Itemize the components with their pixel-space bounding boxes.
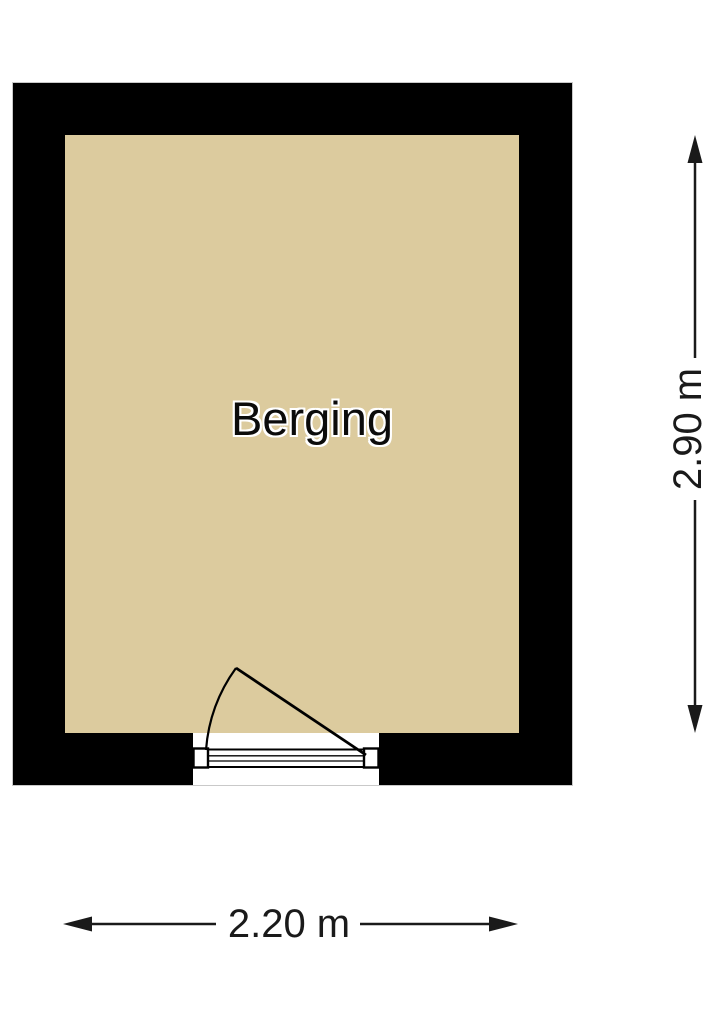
width-dimension-label: 2.20 m — [209, 902, 369, 946]
room-label: Berging — [162, 387, 462, 451]
height-dimension-label: 2.90 m — [666, 269, 710, 589]
floorplan-canvas: Berging 2.90 m 2.20 m — [0, 0, 724, 1024]
arrow-left-icon — [63, 917, 92, 932]
arrow-down-icon — [688, 705, 703, 733]
door-opening — [193, 733, 379, 785]
arrow-right-icon — [489, 917, 518, 932]
arrow-up-icon — [688, 135, 703, 163]
